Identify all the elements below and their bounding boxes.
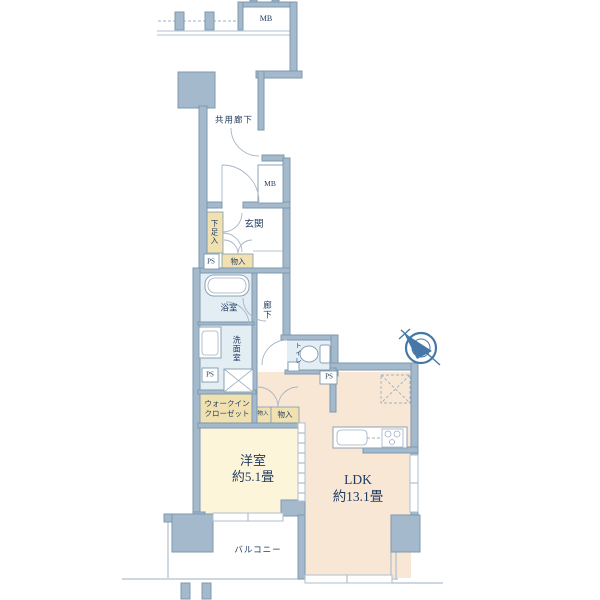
service-post [202,583,211,599]
entry-storage-door-arc [224,240,238,254]
label-storage-hall-small: 物入 [257,412,268,418]
corridor-post [175,12,184,30]
entry-storage-door-arc [238,240,252,254]
label-mb-mid: MB [264,180,276,188]
north-compass-icon [399,329,440,365]
label-balcony: バルコニー [234,546,281,555]
sliding-partition [298,423,305,501]
shoe-cabinet-door-arc [223,213,242,232]
label-entrance: 玄関 [244,221,263,231]
balcony-column-left [172,514,213,552]
label-ps-toilet: PS [325,373,333,380]
floor-plan: MB 共用廊下 MB 玄関 下足入 PS 物入 浴室 廊下 洗面室 トイレ PS… [0,0,600,600]
label-wic-line1: ウォークイン [205,400,250,408]
label-ldk-name: LDK [344,473,372,487]
floorplan-drawing [0,0,600,600]
label-ps-entry: PS [207,258,215,265]
label-ldk-size: 約13.1畳 [333,490,384,504]
balcony-column-right [391,515,420,552]
label-toilet: トイレ [293,342,300,365]
label-shoe-cabinet: 下足入 [210,219,218,245]
label-western-room-size: 約5.1畳 [232,470,274,484]
corridor-post [205,12,214,30]
porch-door-arc [231,128,259,156]
label-ps-washroom: PS [206,371,214,378]
label-storage-entry: 物入 [231,258,246,266]
label-wic-line2: クローゼット [205,410,250,418]
mb-wall [238,2,296,7]
column [178,72,215,108]
label-common-corridor: 共用廊下 [215,116,253,125]
toilet-tank [320,345,330,363]
entrance-door-arc [222,165,259,202]
label-western-room-name: 洋室 [240,454,266,468]
ldk-floor [299,407,411,424]
toilet-door-arc [262,340,287,365]
service-post [181,583,190,599]
label-washroom: 洗面室 [232,336,240,363]
label-hallway: 廊下 [263,301,272,320]
ldk-window [305,575,392,583]
label-mb-top: MB [260,15,272,23]
label-bathroom: 浴室 [220,304,237,313]
label-storage-hall: 物入 [278,411,293,419]
toilet-bowl [300,346,318,362]
